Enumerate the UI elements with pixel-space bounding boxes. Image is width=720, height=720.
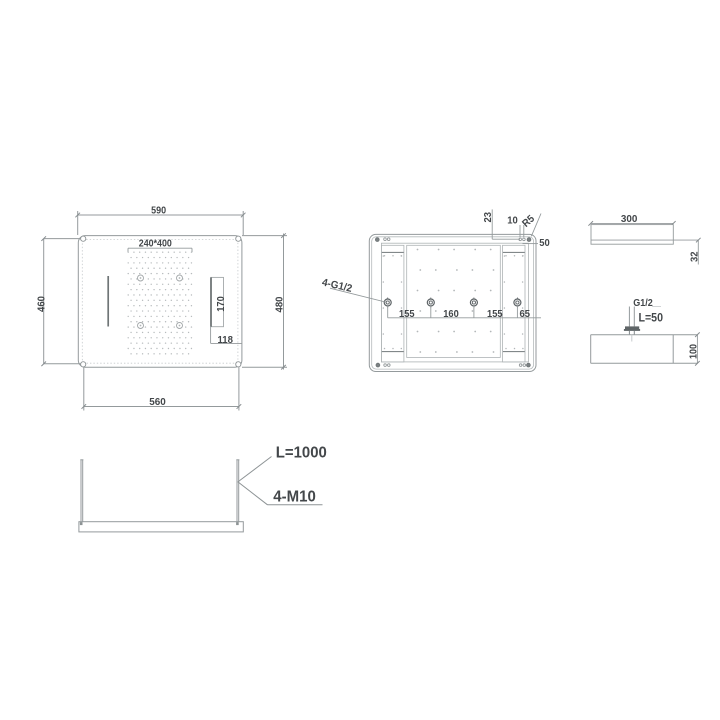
svg-text:560: 560 [149, 396, 166, 408]
svg-text:160: 160 [443, 308, 459, 320]
svg-text:155: 155 [399, 308, 415, 320]
svg-text:170: 170 [215, 296, 227, 312]
svg-text:R5: R5 [520, 213, 537, 230]
svg-text:100: 100 [687, 344, 699, 359]
svg-text:10: 10 [507, 215, 518, 227]
svg-text:G1/2: G1/2 [633, 297, 653, 309]
svg-text:50: 50 [539, 237, 550, 249]
svg-text:L=50: L=50 [639, 313, 664, 325]
svg-text:460: 460 [36, 296, 48, 312]
svg-text:118: 118 [217, 334, 233, 346]
svg-text:590: 590 [151, 204, 166, 216]
svg-text:4-M10: 4-M10 [273, 489, 316, 506]
svg-text:240*400: 240*400 [139, 237, 172, 249]
svg-text:480: 480 [274, 296, 286, 312]
svg-text:65: 65 [520, 308, 531, 320]
svg-text:4-G1/2: 4-G1/2 [321, 277, 354, 295]
svg-text:32: 32 [688, 251, 700, 262]
svg-text:L=1000: L=1000 [276, 444, 327, 461]
svg-text:155: 155 [487, 308, 503, 320]
